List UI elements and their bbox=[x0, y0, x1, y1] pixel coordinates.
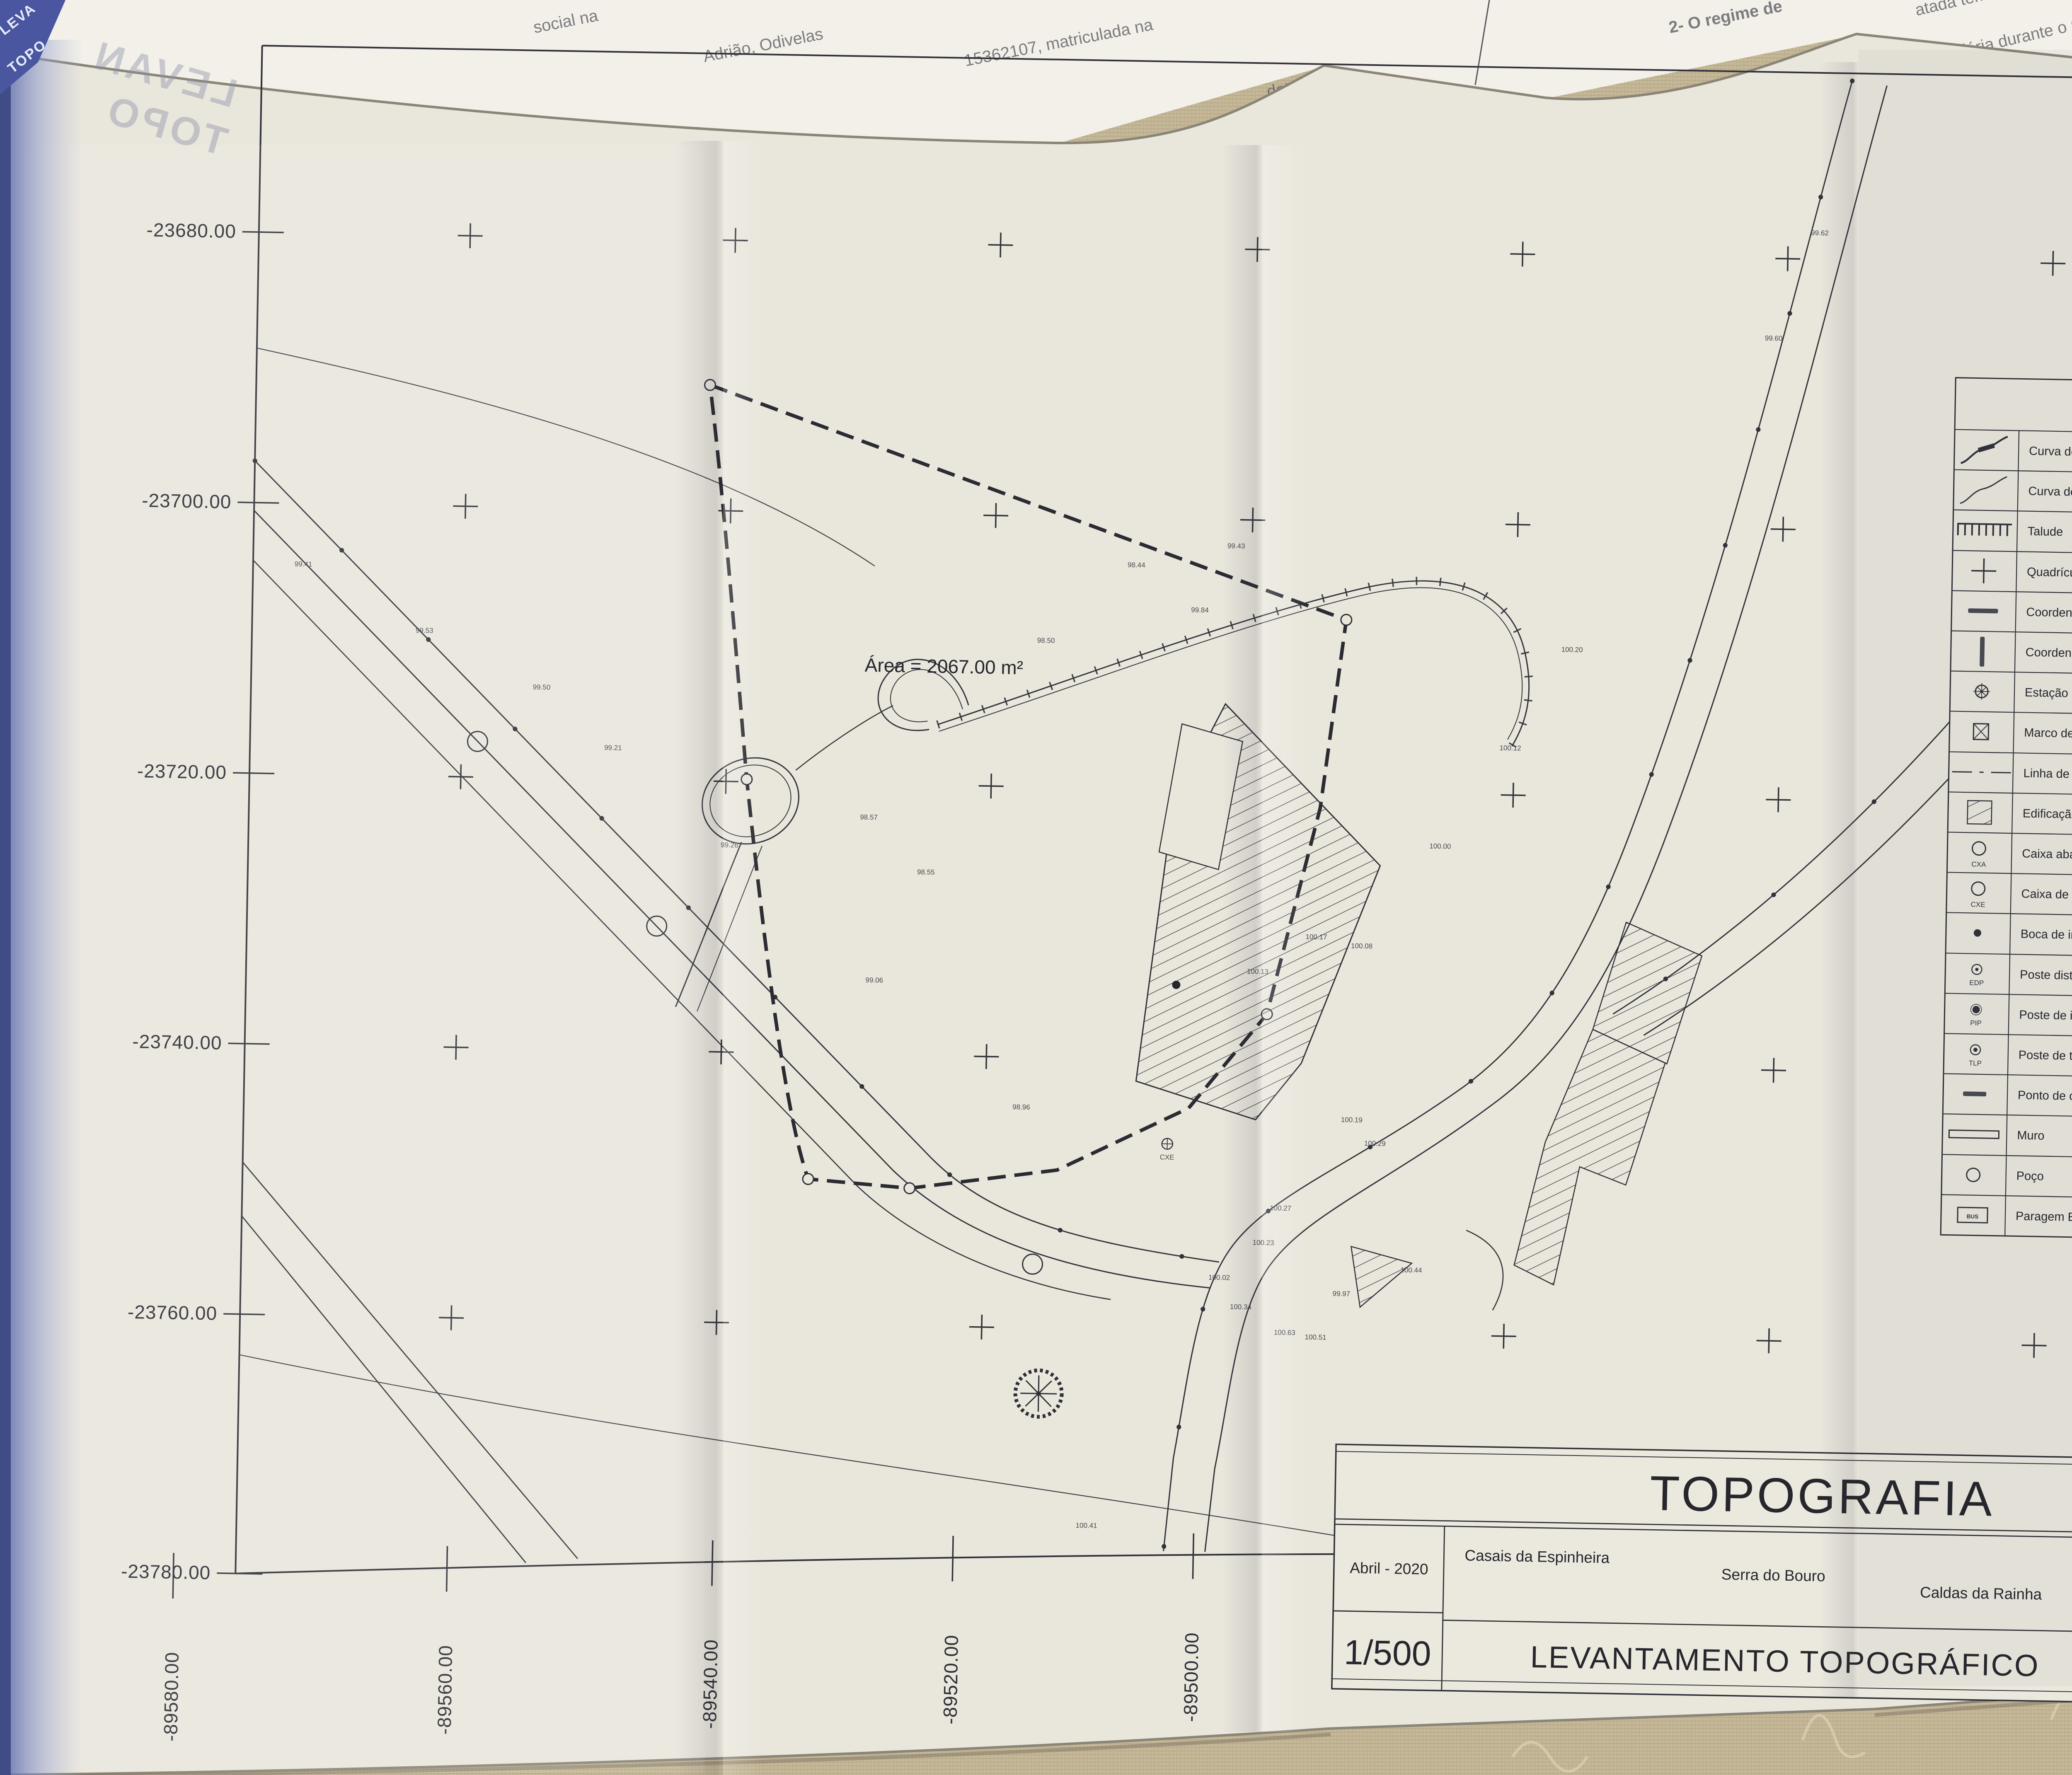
spot-elevation: 99.06 bbox=[865, 976, 883, 984]
spot-elevation: 98.55 bbox=[917, 868, 935, 876]
title-block-parish: Serra do Bouro bbox=[1721, 1566, 1825, 1584]
spot-elevation: 100.19 bbox=[1341, 1116, 1363, 1124]
spot-elevation: 100.20 bbox=[1561, 646, 1583, 654]
title-block-locality: Casais da Espinheira bbox=[1464, 1547, 1610, 1566]
spot-elevation: 100.12 bbox=[1499, 744, 1521, 752]
cxe-label: CXE bbox=[1159, 1153, 1174, 1161]
spot-elevation: 100.44 bbox=[1400, 1266, 1422, 1274]
spot-elevation: 100.51 bbox=[1305, 1333, 1326, 1342]
axis-label: -89520.00 bbox=[939, 1635, 962, 1724]
title-block-date: Abril - 2020 bbox=[1350, 1560, 1428, 1578]
spot-elevation: 98.50 bbox=[1037, 636, 1055, 645]
spot-elevation: 100.41 bbox=[1075, 1521, 1097, 1530]
spot-elevation: 99.60 bbox=[1765, 334, 1783, 343]
spot-elevation: 98.57 bbox=[860, 813, 878, 822]
topographic-plan-photo: social na Adrião, Odivelas 15362107, mat… bbox=[0, 0, 2072, 1775]
spot-elevation: 99.97 bbox=[1332, 1290, 1350, 1298]
spot-elevation: 98.96 bbox=[1012, 1103, 1030, 1111]
spot-elevation: 100.17 bbox=[1305, 933, 1327, 941]
spot-elevation: 99.84 bbox=[1191, 606, 1209, 614]
title-block-scale: 1/500 bbox=[1343, 1632, 1431, 1673]
spot-elevation: 100.00 bbox=[1429, 842, 1451, 851]
spot-elevation: 98.44 bbox=[1128, 561, 1145, 569]
area-label: Área = 2067.00 m² bbox=[864, 654, 1023, 679]
spot-elevation: 100.29 bbox=[1364, 1139, 1386, 1148]
axis-label: -89500.00 bbox=[1179, 1632, 1203, 1722]
spot-elevation: 100.08 bbox=[1351, 942, 1372, 950]
